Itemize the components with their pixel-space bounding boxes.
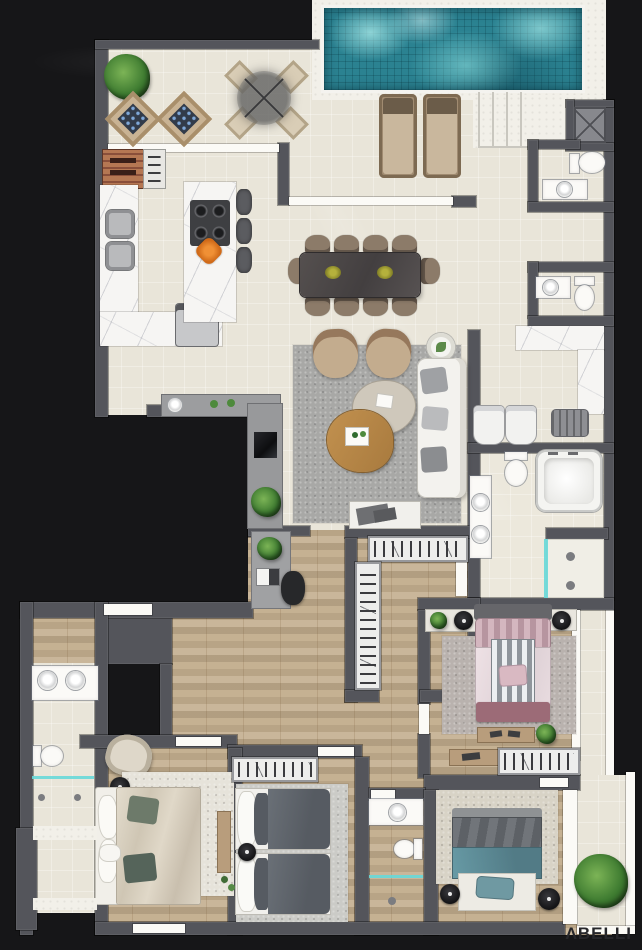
- wall-pillar: [16, 828, 37, 930]
- jacuzzi-basin: [544, 458, 594, 504]
- wall-terrace-stub2: [452, 196, 476, 207]
- bathL-threshold-1: [33, 826, 97, 840]
- bed3-pillow: [476, 877, 513, 899]
- mbath-vanity: [470, 476, 491, 558]
- laundry-basket: [552, 410, 588, 436]
- kitchen-sink-1: [106, 210, 134, 238]
- sill-bed3-balcony: [563, 790, 577, 924]
- window-master-bed3: [540, 778, 568, 787]
- barbecue-grill: [103, 150, 144, 188]
- wall-terrace-stub: [278, 143, 289, 205]
- laundry-counter-top: [516, 326, 604, 350]
- bed1-roll-pillow: [100, 845, 120, 861]
- wall-shower: [546, 528, 608, 539]
- bed3-blanket: [453, 818, 541, 850]
- plant-terrace: [104, 54, 150, 100]
- window-bed1: [133, 924, 185, 933]
- bathroom-left-floor: [30, 663, 100, 913]
- void-opening: [95, 415, 248, 605]
- bed3-nightstand-2: [538, 888, 560, 910]
- plant-tv-unit: [251, 487, 281, 517]
- wall-lav1-left: [528, 140, 538, 211]
- tray-plant-1: [352, 432, 358, 438]
- burner-1: [194, 204, 208, 218]
- dining-chair: [363, 296, 388, 316]
- balcony-upper-floor: [580, 610, 606, 777]
- lav2-toilet-tank: [575, 277, 594, 285]
- wall-master-left-lower: [418, 734, 430, 778]
- jacuzzi-jet-2: [568, 452, 578, 455]
- master-bed-canopy: [474, 604, 552, 620]
- floor-plan-canvas: ΛBELLI: [0, 0, 642, 950]
- centerpiece-1: [325, 266, 341, 279]
- washer-2: [506, 406, 536, 444]
- balcony-upper-rail: [606, 610, 614, 777]
- bar-stool-2: [236, 218, 252, 244]
- bath3-drain: [388, 897, 396, 905]
- mbath-sink-1: [472, 494, 489, 511]
- lav1-sink: [557, 182, 572, 197]
- wardrobe-master: [498, 748, 580, 775]
- tray-plant-2: [360, 431, 366, 437]
- bathL-drain-1: [38, 794, 45, 801]
- elevator-cab: [574, 107, 606, 143]
- kitchen-sink-2: [106, 242, 134, 270]
- dining-chair: [392, 296, 417, 316]
- office-chair: [281, 571, 305, 605]
- burner-2: [212, 204, 226, 218]
- lav2-toilet-bowl: [575, 285, 594, 310]
- terrace-slider-2: [289, 197, 453, 205]
- dining-chair: [305, 235, 330, 255]
- bathL-drain-2: [74, 794, 81, 801]
- lounge-cushion: [117, 103, 148, 134]
- shower-drain-2: [566, 581, 575, 590]
- brand-logo: ΛBELLI: [566, 924, 632, 944]
- wall-mass: [100, 618, 172, 664]
- plant-master: [536, 724, 556, 744]
- door-bedroom2: [318, 747, 354, 756]
- mbath-toilet-bowl: [505, 460, 527, 486]
- sideboard-plant-1: [210, 400, 218, 408]
- wardrobe-top: [368, 536, 468, 562]
- bed2-nightstand: [238, 843, 256, 861]
- bath3-toilet-tank: [414, 839, 422, 859]
- coffee-table-book: [376, 394, 393, 408]
- dining-chair: [305, 296, 330, 316]
- dining-chair-end: [420, 258, 440, 284]
- washer-1: [474, 406, 504, 444]
- bed1-cushion-green-1: [126, 795, 159, 825]
- wall-lav1-bottom: [528, 202, 614, 212]
- bed1-bench: [218, 812, 230, 872]
- wall-notch-right: [160, 664, 172, 742]
- wardrobe-left: [355, 562, 381, 690]
- door-bath3: [371, 790, 395, 799]
- master-lamp-left: [454, 611, 473, 630]
- tv-screen: [254, 432, 277, 458]
- bathL-toilet-tank: [33, 746, 41, 766]
- shower-floor: [546, 539, 604, 598]
- jacuzzi-jet-1: [548, 452, 558, 455]
- bed1-pillow-1: [98, 796, 118, 839]
- wall-closet-bottom-l: [345, 690, 379, 702]
- master-bed-cushion: [499, 665, 526, 686]
- balcony-rail-right: [626, 772, 635, 933]
- wall-top: [95, 40, 319, 49]
- bed1-decor-1: [221, 876, 228, 883]
- lav2-sink: [543, 280, 558, 295]
- dining-chair: [334, 296, 359, 316]
- burner-4: [212, 226, 226, 240]
- bathL-sink-1: [38, 671, 57, 690]
- sofa-pillow-2: [421, 406, 449, 431]
- bar-stool-1: [236, 189, 252, 215]
- sun-lounger-1: [379, 94, 417, 178]
- bath3-shower-glass: [369, 875, 423, 878]
- master-bed-bench: [476, 702, 550, 722]
- bath3-sink: [389, 804, 406, 821]
- dining-table: [300, 253, 420, 297]
- decor-plate-leaf: [436, 342, 446, 352]
- master-dresser: [478, 728, 534, 742]
- laundry-counter-right: [578, 350, 604, 414]
- sun-lounger-2: [423, 94, 461, 178]
- wardrobe-bed2: [232, 757, 318, 782]
- bathL-sink-2: [66, 671, 85, 690]
- wall-master-top: [418, 598, 480, 610]
- dining-chair: [363, 235, 388, 255]
- sideboard-plant-2: [227, 399, 235, 407]
- pool: [324, 8, 582, 90]
- bed3-nightstand-1: [440, 884, 460, 904]
- mbath-toilet-tank: [505, 452, 527, 460]
- grill-slot-2: [110, 170, 136, 175]
- wall-bed2-bath: [355, 757, 369, 935]
- sideboard-bowl: [168, 398, 182, 412]
- bar-stool-3: [236, 247, 252, 273]
- door-vestibule: [104, 604, 152, 615]
- dining-chair: [392, 235, 417, 255]
- bed2b-duvet: [268, 854, 330, 914]
- pool-steps: [478, 92, 534, 148]
- shower-glass: [544, 539, 548, 598]
- lav1-toilet-bowl: [579, 152, 605, 173]
- wall-right-main: [604, 100, 614, 600]
- bathL-toilet-bowl: [41, 746, 63, 766]
- bathL-shower-glass: [32, 776, 94, 779]
- grill-slot-1: [110, 158, 136, 163]
- bed1-decor-2: [228, 884, 235, 891]
- master-lamp-right: [552, 611, 571, 630]
- door-bedroom1: [176, 737, 221, 746]
- master-dresser-item2: [508, 730, 521, 737]
- shower-drain-1: [566, 552, 575, 561]
- grill-side-module: [144, 150, 165, 188]
- vestibule-floor: [30, 618, 100, 664]
- lav1-toilet-tank: [570, 154, 579, 173]
- plant-desk: [257, 537, 282, 560]
- lounge-cushion: [168, 103, 199, 134]
- bed1-cushion-green-2: [123, 852, 158, 883]
- mbath-sink-2: [472, 526, 489, 543]
- bathL-threshold-2: [33, 898, 97, 910]
- wall-lav2-top: [528, 262, 614, 272]
- wall-lav2-bottom: [528, 316, 614, 326]
- plant-balcony: [574, 854, 628, 908]
- dining-chair: [334, 235, 359, 255]
- plant-master-console: [430, 612, 447, 629]
- centerpiece-2: [377, 266, 393, 279]
- bath3-toilet-bowl: [394, 840, 415, 858]
- bed2a-duvet: [268, 789, 330, 849]
- laptop: [257, 569, 279, 585]
- void-notch: [108, 664, 166, 738]
- door-master: [419, 704, 429, 734]
- sofa-pillow-1: [419, 366, 448, 394]
- sofa-pillow-3: [420, 446, 448, 473]
- parasol-table: [237, 71, 291, 125]
